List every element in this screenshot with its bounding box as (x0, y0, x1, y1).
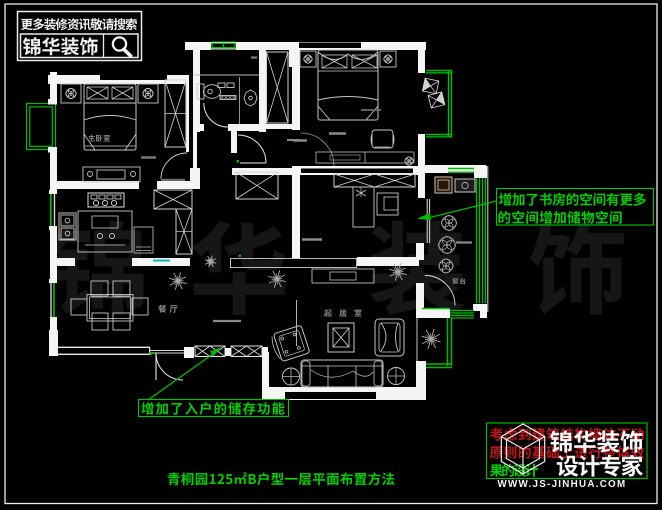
svg-text:WWW.JS-JINHUA.COM: WWW.JS-JINHUA.COM (498, 479, 626, 490)
